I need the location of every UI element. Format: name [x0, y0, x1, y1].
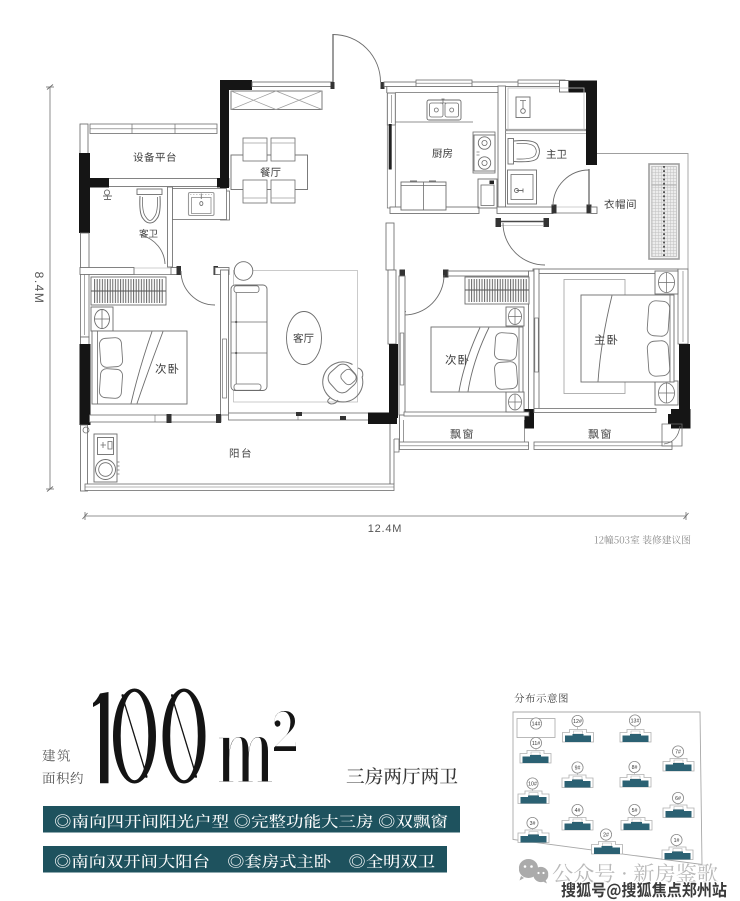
svg-text:9#: 9# — [575, 765, 581, 771]
svg-text:13#: 13# — [631, 718, 640, 724]
svg-text:8.4M: 8.4M — [32, 272, 46, 305]
svg-text:14#: 14# — [532, 721, 541, 727]
svg-text:1#: 1# — [674, 838, 680, 844]
svg-text:2#: 2# — [603, 832, 609, 838]
svg-text:4#: 4# — [575, 808, 581, 814]
svg-text:6#: 6# — [675, 796, 681, 802]
svg-text:3#: 3# — [530, 821, 536, 827]
svg-text:8#: 8# — [632, 765, 638, 771]
svg-text:5#: 5# — [632, 808, 638, 814]
svg-text:12#: 12# — [573, 719, 582, 725]
svg-text:7#: 7# — [675, 749, 681, 755]
svg-text:11#: 11# — [532, 741, 540, 747]
svg-text:12.4M: 12.4M — [368, 523, 403, 535]
svg-text:10#: 10# — [528, 781, 537, 787]
